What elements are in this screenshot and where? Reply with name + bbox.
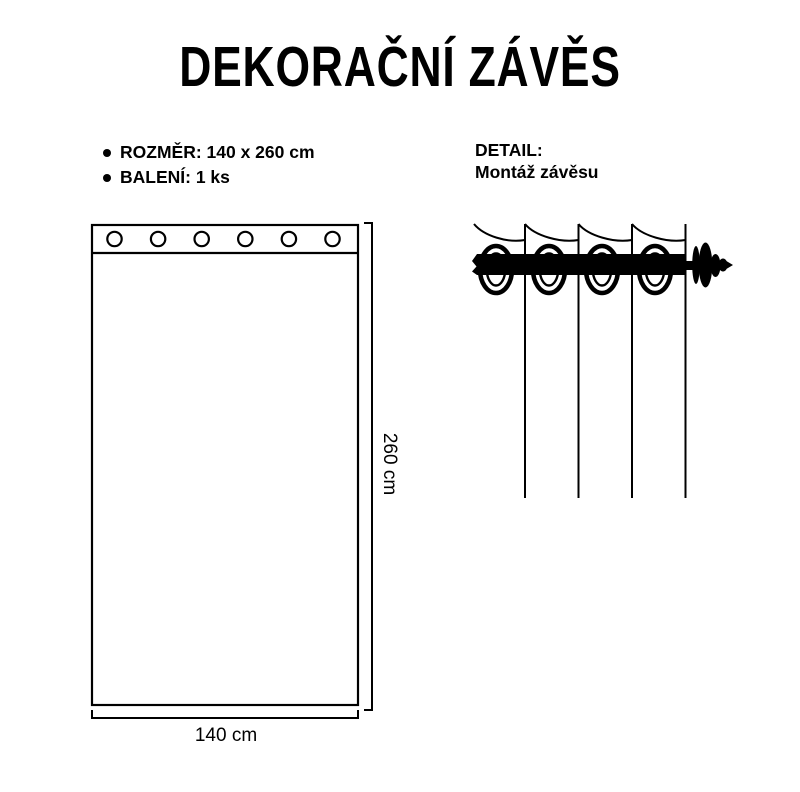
fabric-top-edge: [474, 224, 525, 241]
grommet-row: [107, 232, 339, 246]
detail-header: DETAIL: Montáž závěsu: [475, 139, 599, 183]
width-dimension-label: 140 cm: [195, 725, 257, 747]
finial-tip: [723, 259, 733, 271]
detail-subheading: Montáž závěsu: [475, 161, 599, 183]
curtain-diagram: [80, 215, 390, 765]
grommet-hole: [107, 232, 121, 246]
finial-bulge: [692, 246, 700, 284]
finial-bulge: [699, 243, 713, 288]
fabric-top-edge: [632, 224, 686, 241]
grommet-hole: [151, 232, 165, 246]
detail-heading: DETAIL:: [475, 139, 599, 161]
spec-package-label: BALENÍ: 1 ks: [120, 168, 230, 187]
page-title: DEKORAČNÍ ZÁVĚS: [88, 34, 712, 100]
spec-item-package: BALENÍ: 1 ks: [103, 168, 315, 187]
spec-size-label: ROZMĚR: 140 x 260 cm: [120, 143, 315, 162]
bullet-icon: [103, 149, 111, 157]
grommet-hole: [325, 232, 339, 246]
bullet-icon: [103, 174, 111, 182]
rod-finial: [686, 243, 734, 288]
width-dimension-bracket: [92, 710, 358, 718]
curtain-panel: [92, 225, 358, 705]
grommet-hole: [282, 232, 296, 246]
grommet-hole: [238, 232, 252, 246]
grommet-hole: [195, 232, 209, 246]
product-sheet: DEKORAČNÍ ZÁVĚS ROZMĚR: 140 x 260 cm BAL…: [0, 0, 800, 792]
height-dimension-bracket: [364, 223, 372, 710]
fabric-top-edge: [579, 224, 633, 241]
height-dimension-label: 260 cm: [378, 433, 400, 495]
specs-list: ROZMĚR: 140 x 260 cm BALENÍ: 1 ks: [103, 143, 315, 193]
spec-item-size: ROZMĚR: 140 x 260 cm: [103, 143, 315, 162]
mounting-detail-diagram: [440, 205, 770, 515]
fabric-top-edge: [525, 224, 579, 241]
